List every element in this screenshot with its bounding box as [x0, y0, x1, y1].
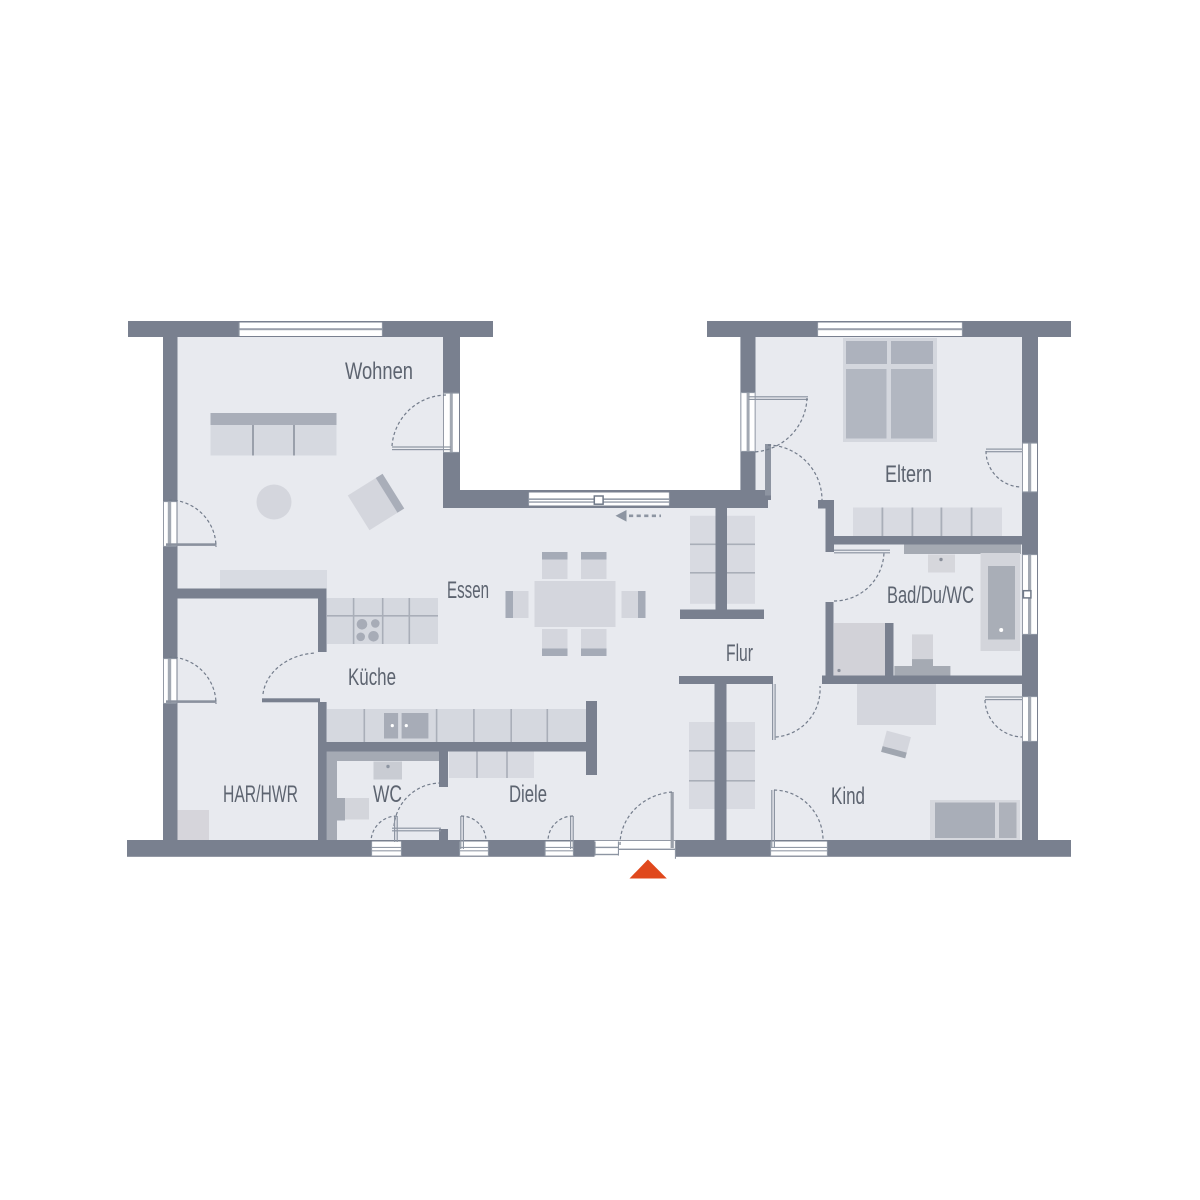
- svg-text:Wohnen: Wohnen: [345, 358, 413, 385]
- svg-text:Flur: Flur: [726, 640, 753, 667]
- svg-text:Bad/Du/WC: Bad/Du/WC: [887, 582, 974, 609]
- svg-text:HAR/HWR: HAR/HWR: [223, 781, 298, 808]
- svg-text:WC: WC: [373, 781, 402, 808]
- svg-text:Eltern: Eltern: [885, 461, 932, 488]
- svg-text:Diele: Diele: [509, 781, 547, 808]
- svg-text:Kind: Kind: [831, 783, 865, 810]
- svg-text:Essen: Essen: [447, 577, 489, 604]
- svg-text:Küche: Küche: [348, 664, 396, 691]
